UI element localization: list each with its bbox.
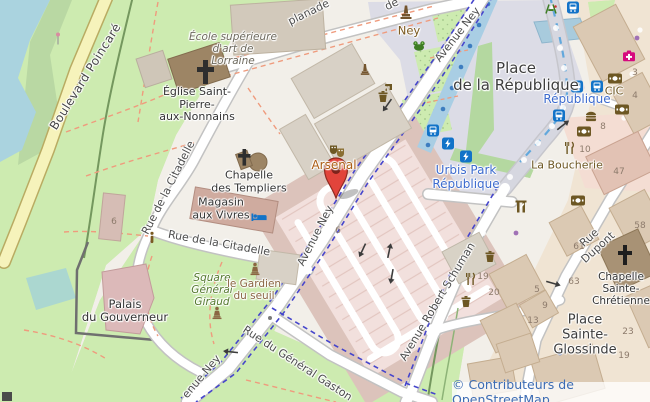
map-base-layer (0, 0, 650, 402)
map-canvas[interactable]: Boulevard Poincaré de planade École supé… (0, 0, 650, 402)
attribution-link[interactable]: © Contributeurs de OpenStreetMap (452, 377, 646, 402)
attribution-bar: © Contributeurs de OpenStreetMap (452, 382, 650, 402)
